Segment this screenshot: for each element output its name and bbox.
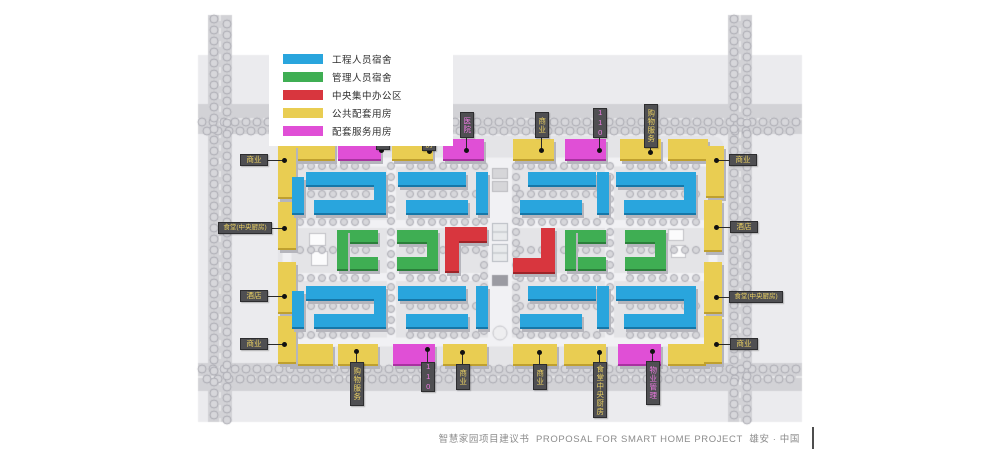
label-tag-text: 酒店 <box>737 223 752 231</box>
legend-label: 管理人员宿舍 <box>332 70 392 84</box>
legend-label: 中央集中办公区 <box>332 88 402 102</box>
legend-item: 公共配套用房 <box>283 104 453 122</box>
legend-label: 工程人员宿舍 <box>332 52 392 66</box>
label-tag: 商业 <box>456 364 470 390</box>
legend-item: 管理人员宿舍 <box>283 68 453 86</box>
label-tag: 商业 <box>240 154 268 166</box>
legend-item: 工程人员宿舍 <box>283 50 453 68</box>
building-eng <box>314 314 376 329</box>
building-eng <box>398 172 466 187</box>
tag-anchor-dot <box>714 225 719 230</box>
site-plan-page: 工程人员宿舍管理人员宿舍中央集中办公区公共配套用房配套服务用房 物业管理食堂中央… <box>0 0 1000 465</box>
tag-anchor-dot <box>282 226 287 231</box>
building-public <box>668 344 708 366</box>
label-tag: 购物服务 <box>644 104 658 148</box>
building-eng <box>374 286 386 329</box>
legend-label: 配套服务用房 <box>332 124 392 138</box>
building-public <box>706 146 724 198</box>
building-eng <box>684 286 696 329</box>
building-public <box>513 139 554 161</box>
caption-location: 雄安 · 中国 <box>749 434 800 445</box>
tag-anchor-dot <box>282 294 287 299</box>
tag-anchor-dot <box>354 349 359 354</box>
tag-anchor-dot <box>650 349 655 354</box>
label-tag: 食堂(中央厨房) <box>218 222 272 234</box>
building-mgmt <box>427 230 438 271</box>
building-eng <box>306 172 374 187</box>
building-public <box>668 139 708 161</box>
legend: 工程人员宿舍管理人员宿舍中央集中办公区公共配套用房配套服务用房 <box>269 44 453 146</box>
tag-anchor-dot <box>282 158 287 163</box>
label-tag: 商业 <box>240 338 268 350</box>
building-eng <box>476 286 488 329</box>
tag-anchor-dot <box>539 148 544 153</box>
building-office <box>445 241 459 273</box>
map-canvas <box>0 0 1000 465</box>
building-public <box>443 344 487 366</box>
label-tag: 商业 <box>729 154 757 166</box>
building-office <box>513 258 555 274</box>
tag-anchor-dot <box>714 295 719 300</box>
label-tag: 酒店 <box>240 290 268 302</box>
building-eng <box>406 200 468 215</box>
building-eng <box>684 172 696 215</box>
label-tag: 食堂(中央厨房) <box>729 291 783 303</box>
tag-anchor-dot <box>597 148 602 153</box>
label-tag-text: 购物服务 <box>353 367 361 401</box>
building-mgmt <box>565 230 576 271</box>
label-tag-text: 食堂(中央厨房) <box>734 294 777 301</box>
building-mgmt <box>337 230 348 271</box>
label-tag-text: 商业 <box>538 117 546 134</box>
building-public <box>704 316 722 364</box>
label-tag-text: 商业 <box>247 156 262 164</box>
legend-swatch-eng <box>283 54 323 64</box>
label-tag-text: 商业 <box>247 340 262 348</box>
caption: 智慧家园项目建议书 PROPOSAL FOR SMART HOME PROJEC… <box>439 431 800 445</box>
legend-swatch-public <box>283 108 323 118</box>
tag-anchor-dot <box>537 350 542 355</box>
label-tag-text: 商业 <box>736 156 751 164</box>
building-eng <box>624 314 686 329</box>
label-tag-text: 食堂中央厨房 <box>596 365 604 416</box>
label-tag-text: 110 <box>596 108 604 138</box>
label-tag-text: 商业 <box>459 369 467 386</box>
building-eng <box>374 172 386 215</box>
building-eng <box>292 291 304 329</box>
building-eng <box>597 172 609 215</box>
label-tag: 商业 <box>533 364 547 390</box>
label-tag-text: 110 <box>424 362 432 392</box>
label-tag: 食堂中央厨房 <box>593 362 607 418</box>
tag-anchor-dot <box>282 342 287 347</box>
caption-en: PROPOSAL FOR SMART HOME PROJECT <box>536 434 743 445</box>
legend-swatch-service <box>283 126 323 136</box>
building-mgmt <box>655 230 666 271</box>
label-tag: 购物服务 <box>350 362 364 406</box>
tag-anchor-dot <box>714 158 719 163</box>
label-tag-text: 食堂(中央厨房) <box>223 225 266 232</box>
label-tag-text: 物业管理 <box>649 366 657 400</box>
building-eng <box>476 172 488 215</box>
label-tag: 医院 <box>460 112 474 138</box>
label-tag-text: 商业 <box>737 340 752 348</box>
tag-anchor-dot <box>460 350 465 355</box>
building-eng <box>597 286 609 329</box>
tag-anchor-dot <box>714 342 719 347</box>
label-tag-text: 医院 <box>463 117 471 134</box>
label-tag: 110 <box>593 108 607 138</box>
tag-anchor-dot <box>464 148 469 153</box>
building-public <box>513 344 557 366</box>
legend-item: 中央集中办公区 <box>283 86 453 104</box>
caption-divider <box>812 427 814 449</box>
legend-swatch-office <box>283 90 323 100</box>
building-eng <box>616 172 684 187</box>
building-public <box>704 262 722 314</box>
building-eng <box>616 286 684 301</box>
building-eng <box>306 286 374 301</box>
caption-zh: 智慧家园项目建议书 <box>439 434 530 445</box>
building-eng <box>520 314 582 329</box>
building-eng <box>520 200 582 215</box>
building-eng <box>292 177 304 215</box>
label-tag: 酒店 <box>730 221 758 233</box>
building-eng <box>528 172 596 187</box>
building-eng <box>406 314 468 329</box>
label-tag: 物业管理 <box>646 361 660 405</box>
label-tag: 商业 <box>535 112 549 138</box>
tag-anchor-dot <box>648 150 653 155</box>
building-eng <box>528 286 596 301</box>
building-office <box>541 228 555 260</box>
tag-anchor-dot <box>425 347 430 352</box>
label-tag: 110 <box>421 362 435 392</box>
building-eng <box>314 200 376 215</box>
label-tag-text: 商业 <box>536 369 544 386</box>
building-eng <box>398 286 466 301</box>
label-tag: 商业 <box>730 338 758 350</box>
legend-label: 公共配套用房 <box>332 106 392 120</box>
building-public <box>704 200 722 252</box>
label-tag-text: 酒店 <box>247 292 262 300</box>
building-eng <box>624 200 686 215</box>
tag-anchor-dot <box>597 350 602 355</box>
label-tag-text: 购物服务 <box>647 109 655 143</box>
legend-swatch-mgmt <box>283 72 323 82</box>
legend-item: 配套服务用房 <box>283 122 453 140</box>
